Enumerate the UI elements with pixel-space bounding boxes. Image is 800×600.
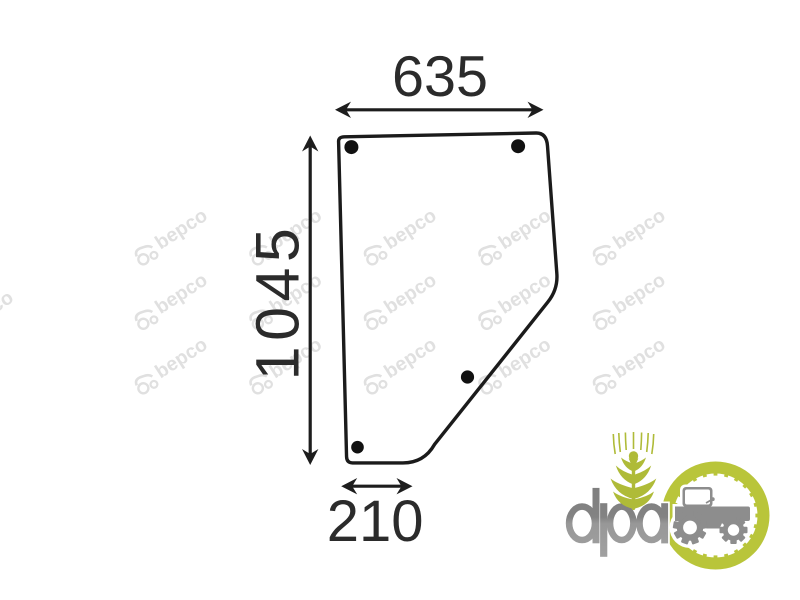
svg-text:210: 210	[327, 489, 424, 554]
svg-text:1045: 1045	[244, 223, 312, 381]
svg-text:635: 635	[392, 45, 488, 109]
